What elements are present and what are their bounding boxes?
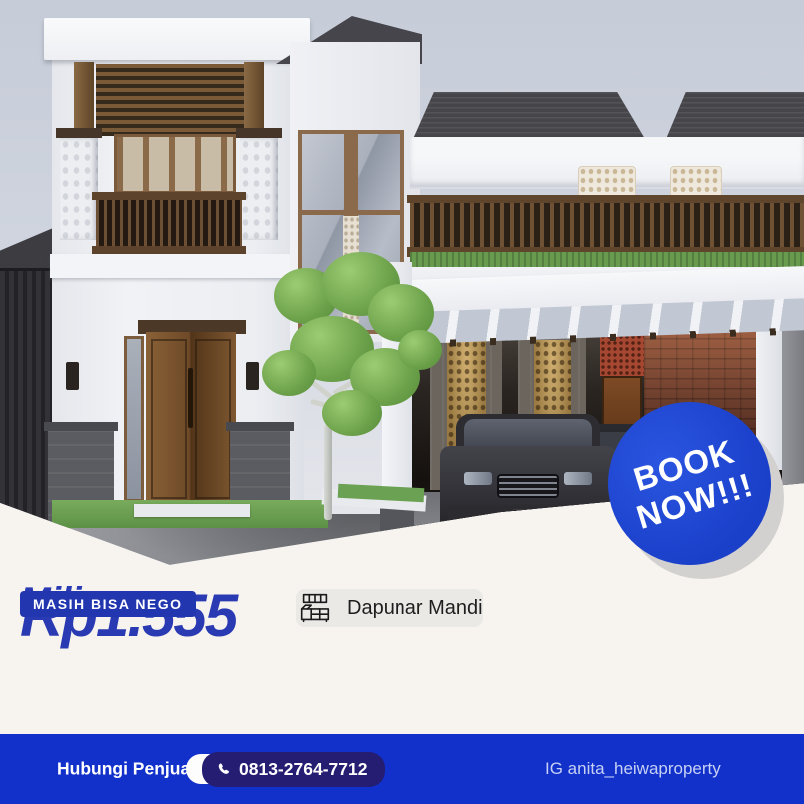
hip-roof bbox=[413, 92, 645, 139]
instagram-handle[interactable]: IG anita_heiwaproperty bbox=[545, 759, 721, 779]
door-side-window bbox=[124, 336, 144, 502]
feature-card-kitchen: Dapur bbox=[296, 589, 401, 627]
hip-roof bbox=[666, 92, 804, 139]
contact-bar: Hubungi Penjual 0813-2764-7712 Anita Sar… bbox=[0, 734, 804, 804]
tree-foliage bbox=[398, 330, 442, 370]
gray-pillar bbox=[782, 298, 804, 546]
tree-foliage bbox=[262, 350, 316, 396]
neighbor-roof bbox=[0, 224, 54, 270]
balcony-railing bbox=[96, 192, 242, 256]
phone-number: 0813-2764-7712 bbox=[239, 759, 367, 780]
car-grille bbox=[497, 474, 559, 498]
wood-post bbox=[244, 62, 264, 138]
door-handle bbox=[188, 368, 193, 428]
kitchen-icon bbox=[296, 589, 334, 627]
carved-pillar bbox=[240, 138, 278, 240]
balcony-slab bbox=[50, 254, 306, 278]
carved-pillar bbox=[60, 138, 98, 240]
car-headlight bbox=[464, 472, 492, 485]
nego-row: MASIH BISA NEGO bbox=[20, 591, 204, 617]
left-house-cornice bbox=[44, 18, 310, 60]
terrace-railing bbox=[410, 195, 804, 257]
contact-heading: Hubungi Penjual bbox=[57, 759, 195, 780]
pillar-cap bbox=[56, 128, 102, 138]
balcony-doors bbox=[114, 134, 236, 194]
nego-badge: MASIH BISA NEGO bbox=[20, 591, 196, 617]
phone-icon bbox=[216, 762, 231, 777]
wall-lamp bbox=[66, 362, 79, 390]
tree-foliage bbox=[322, 390, 382, 436]
wall-lamp bbox=[246, 362, 259, 390]
car-plate bbox=[513, 509, 543, 520]
feature-label: Dapur bbox=[347, 597, 401, 620]
car-headlight bbox=[564, 472, 592, 485]
tree-trunk bbox=[324, 424, 332, 520]
wood-post bbox=[74, 62, 94, 138]
door-step bbox=[134, 504, 250, 517]
suv-car bbox=[440, 414, 616, 532]
flyer-canvas: BOOK NOW!!! Rp1.555 Miliar MASIH BISA NE… bbox=[0, 0, 804, 804]
wood-slat-screen bbox=[96, 64, 246, 136]
window-transom bbox=[302, 210, 400, 215]
pillar-cap bbox=[236, 128, 282, 138]
phone-pill[interactable]: 0813-2764-7712 bbox=[202, 752, 385, 787]
